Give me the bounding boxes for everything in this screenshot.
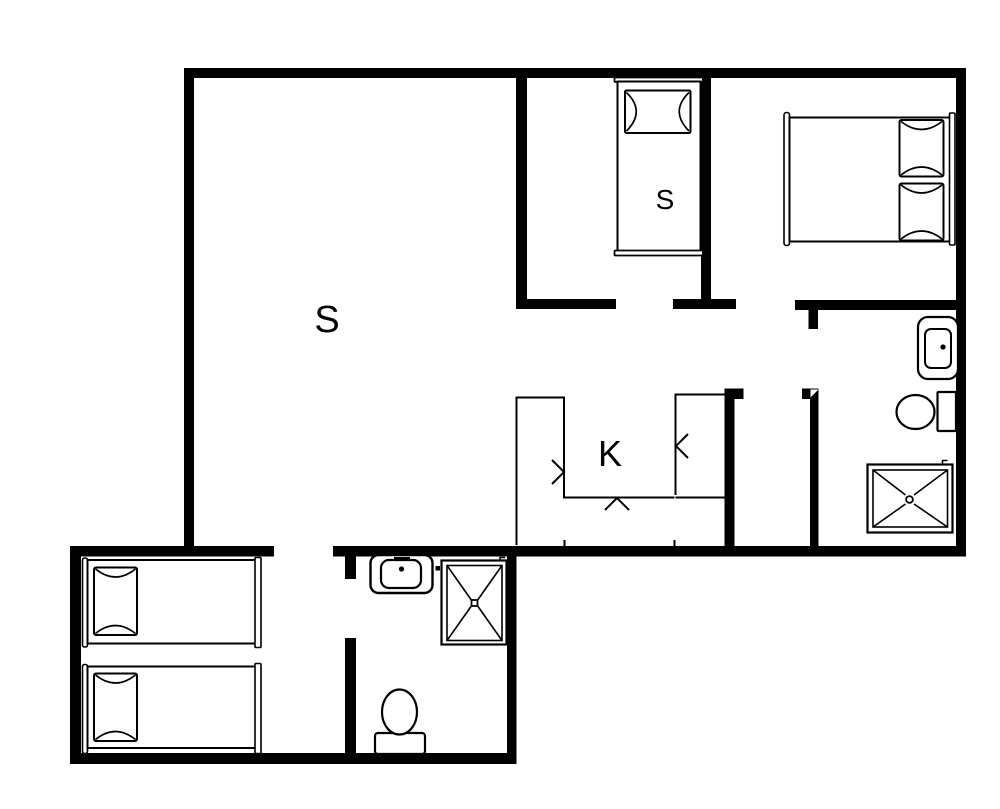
svg-text:S: S [314, 299, 339, 341]
svg-text:S: S [656, 184, 675, 215]
svg-text:K: K [598, 433, 622, 474]
